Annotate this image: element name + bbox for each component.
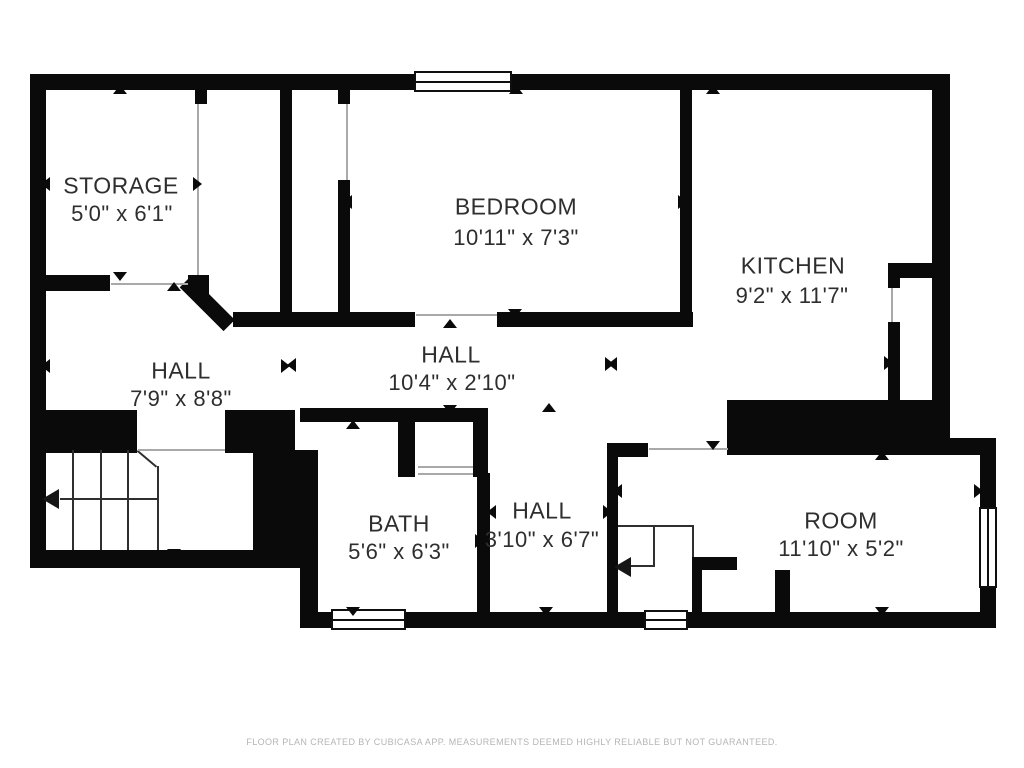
measure-arrow: [443, 405, 457, 414]
room-name-label: STORAGE: [63, 173, 179, 200]
measure-arrow: [346, 420, 360, 429]
door-opening: [416, 314, 497, 316]
measure-arrow: [605, 357, 614, 371]
wall: [497, 312, 693, 327]
door-opening: [346, 104, 348, 180]
room-name-label: BEDROOM: [455, 194, 577, 221]
stair-line: [618, 525, 692, 527]
stair-arrow-shaft: [60, 498, 157, 500]
room-name-label: KITCHEN: [741, 253, 845, 280]
measure-arrow: [542, 403, 556, 412]
measure-arrow: [613, 484, 622, 498]
wall: [338, 90, 350, 104]
measure-arrow: [875, 451, 889, 460]
room-dims-label: 9'2" x 11'7": [736, 283, 849, 309]
room-dims-label: 10'4" x 2'10": [388, 370, 515, 396]
measure-arrow: [113, 85, 127, 94]
wall: [692, 557, 737, 570]
measure-arrow: [443, 319, 457, 328]
stair-line: [72, 450, 74, 550]
window-mullion: [333, 619, 404, 621]
room-dims-label: 11'10" x 5'2": [778, 536, 904, 562]
window-mullion: [987, 509, 989, 586]
stair-line: [127, 450, 129, 550]
stair-arrow-head: [42, 489, 59, 509]
wall: [30, 410, 137, 453]
wall: [280, 90, 292, 327]
stair-line: [137, 450, 157, 468]
measure-arrow: [193, 177, 202, 191]
wall: [775, 570, 790, 612]
stair-line: [653, 525, 655, 567]
room-name-label: HALL: [512, 498, 572, 525]
measure-arrow: [475, 534, 484, 548]
window-mullion: [646, 619, 686, 621]
wall: [195, 90, 207, 104]
window: [414, 71, 512, 92]
wall: [888, 278, 900, 288]
measure-arrow: [706, 441, 720, 450]
stair-arrow-shaft: [630, 565, 653, 567]
door-opening: [138, 449, 225, 451]
stair-line: [692, 525, 694, 557]
room-dims-label: 10'11" x 7'3": [453, 225, 579, 251]
stair-arrow-head: [614, 557, 631, 577]
measure-arrow: [167, 549, 181, 558]
wall: [30, 275, 110, 291]
measure-arrow: [678, 195, 687, 209]
wall: [692, 570, 702, 612]
measure-arrow: [41, 359, 50, 373]
wall: [888, 263, 932, 278]
measure-arrow: [706, 85, 720, 94]
measure-arrow: [509, 85, 523, 94]
measure-arrow: [539, 607, 553, 616]
wall: [473, 408, 488, 477]
measure-arrow: [113, 272, 127, 281]
wall: [607, 443, 618, 628]
window-mullion: [416, 81, 510, 83]
wall: [727, 400, 950, 455]
window: [644, 610, 688, 630]
measure-arrow: [603, 505, 612, 519]
measure-arrow: [508, 309, 522, 318]
measure-arrow: [167, 282, 181, 291]
measure-arrow: [875, 607, 889, 616]
stair-line: [100, 450, 102, 550]
measure-arrow: [343, 195, 352, 209]
measure-arrow: [281, 359, 290, 373]
door-opening: [418, 473, 473, 475]
wall: [233, 312, 415, 327]
room-name-label: ROOM: [804, 508, 878, 535]
wall: [300, 568, 318, 612]
room-dims-label: 5'6" x 6'3": [348, 539, 450, 565]
room-dims-label: 7'9" x 8'8": [130, 386, 232, 412]
wall: [932, 74, 950, 404]
door-opening: [418, 466, 473, 468]
measure-arrow: [884, 356, 893, 370]
floorplan: STORAGE5'0" x 6'1"BEDROOM10'11" x 7'3"KI…: [0, 0, 1024, 768]
wall: [398, 408, 415, 477]
room-dims-label: 5'0" x 6'1": [71, 201, 173, 227]
measure-arrow: [305, 534, 314, 548]
door-opening: [891, 288, 893, 322]
window: [979, 507, 997, 588]
measure-arrow: [487, 505, 496, 519]
footer-disclaimer: FLOOR PLAN CREATED BY CUBICASA APP. MEAS…: [246, 737, 777, 747]
room-dims-label: 3'10" x 6'7": [485, 527, 599, 553]
wall: [225, 410, 295, 453]
stair-line: [157, 466, 159, 550]
measure-arrow: [974, 484, 983, 498]
room-name-label: HALL: [151, 358, 211, 385]
window: [331, 609, 406, 630]
room-name-label: HALL: [421, 342, 481, 369]
room-name-label: BATH: [368, 511, 430, 538]
wall: [300, 408, 488, 422]
measure-arrow: [346, 607, 360, 616]
measure-arrow: [41, 177, 50, 191]
